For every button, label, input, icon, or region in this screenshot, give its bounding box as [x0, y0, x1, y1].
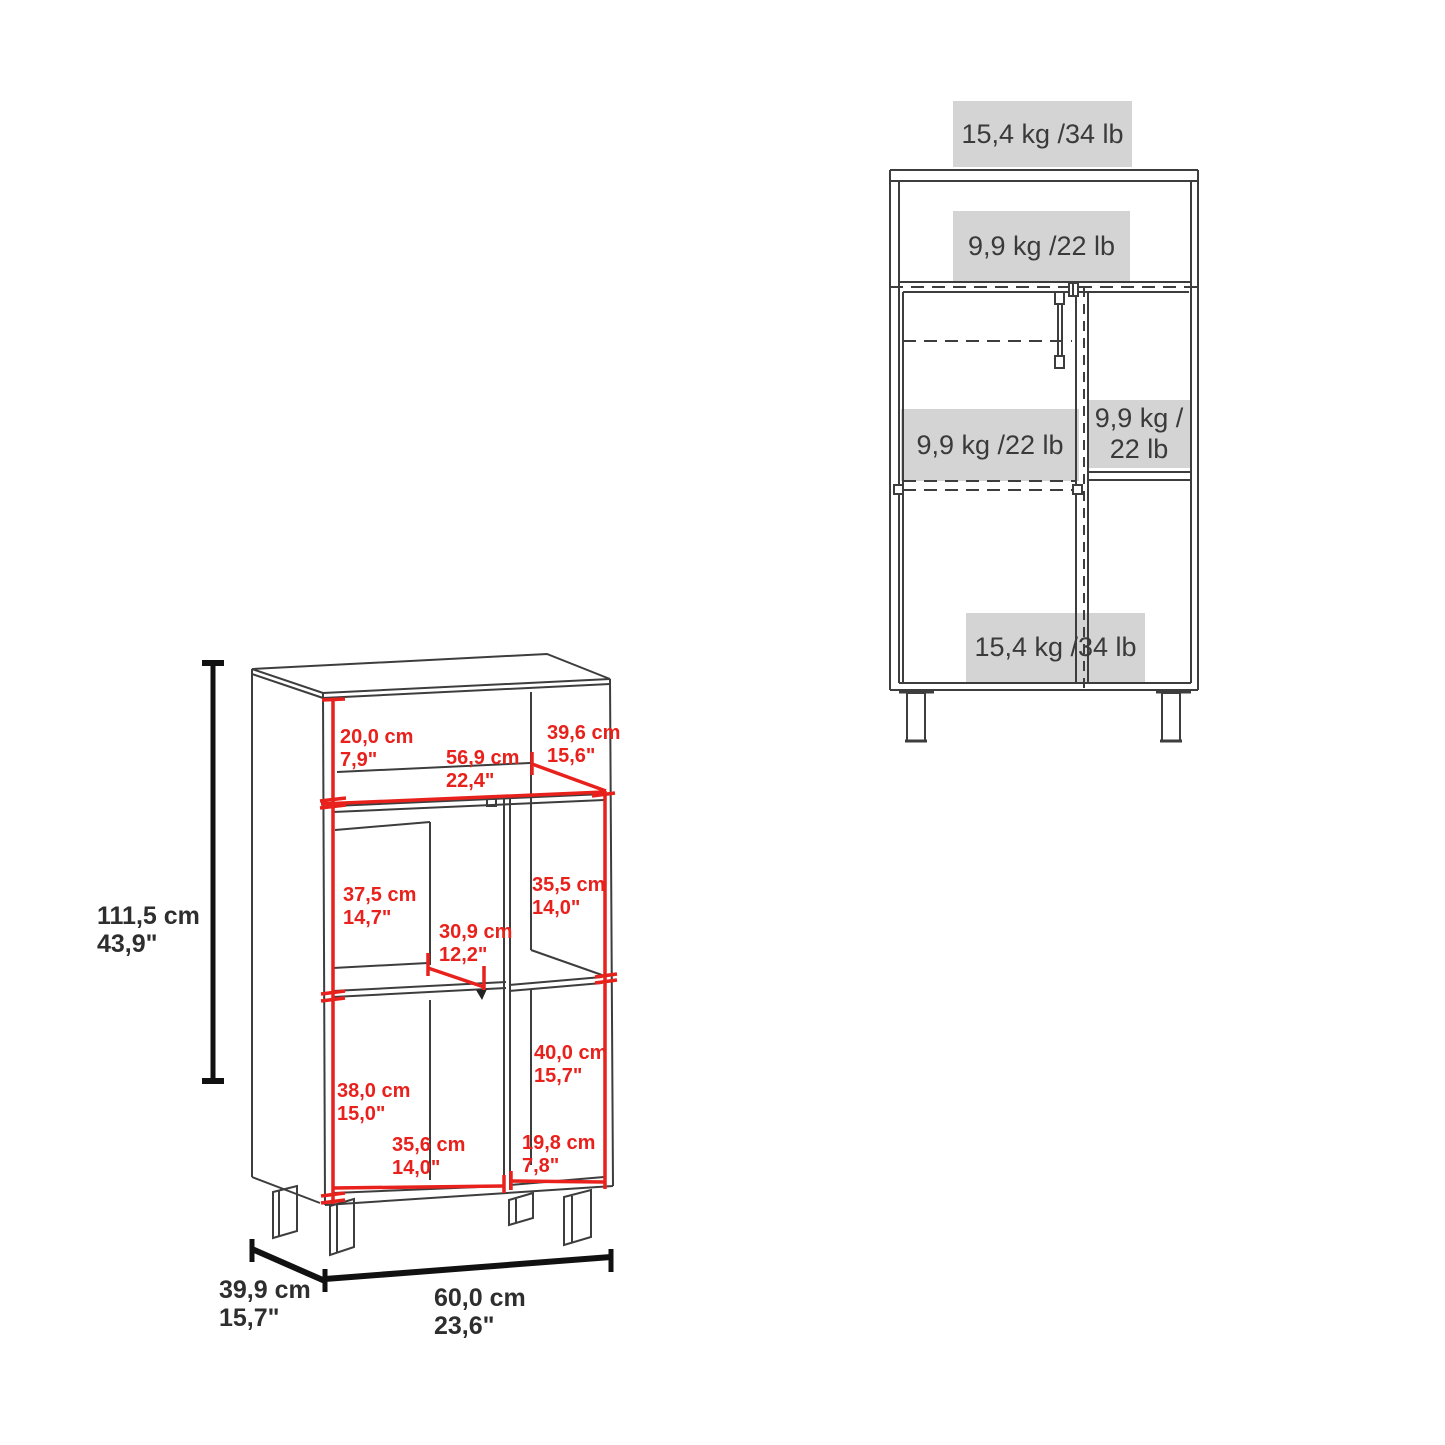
left-hinge-icon — [894, 485, 903, 494]
capacity-upper-shelf: 9,9 kg /22 lb — [953, 211, 1130, 281]
dim-upper-left-height: 37,5 cm 14,7" — [343, 884, 416, 930]
right-hinge-icon — [1073, 485, 1082, 494]
dim-top-shelf-depth: 39,6 cm 15,6" — [547, 722, 620, 768]
capacity-middle-left-shelf: 9,9 kg /22 lb — [901, 409, 1079, 481]
dim-overall-depth: 39,9 cm 15,7" — [219, 1276, 311, 1332]
dim-overall-width: 60,0 cm 23,6" — [434, 1284, 526, 1340]
dim-lower-right-height: 40,0 cm 15,7" — [534, 1042, 607, 1088]
dim-top-shelf-width: 56,9 cm 22,4" — [446, 747, 519, 793]
capacity-bottom-shelf: 15,4 kg /34 lb — [966, 613, 1145, 682]
dim-lower-left-height: 38,0 cm 15,0" — [337, 1080, 410, 1126]
dim-overall-height: 111,5 cm 43,9" — [97, 902, 200, 958]
dim-lower-right-width: 19,8 cm 7,8" — [522, 1132, 595, 1178]
capacity-boxes — [901, 101, 1190, 682]
dim-center-width: 30,9 cm 12,2" — [439, 921, 512, 967]
front-view-legs — [905, 693, 1182, 741]
dim-upper-right-height: 35,5 cm 14,0" — [532, 874, 605, 920]
capacity-middle-right-shelf: 9,9 kg / 22 lb — [1088, 400, 1190, 468]
diagram-linework — [0, 0, 1445, 1445]
dim-top-opening-height: 20,0 cm 7,9" — [340, 726, 413, 772]
capacity-top-surface: 15,4 kg /34 lb — [953, 101, 1132, 167]
shelf-pin-arrow-icon — [476, 989, 487, 1000]
dim-lower-left-width: 35,6 cm 14,0" — [392, 1134, 465, 1180]
door-piston-icon — [1055, 292, 1064, 368]
top-hinge-icon — [1069, 283, 1078, 296]
furniture-dimension-diagram: 111,5 cm 43,9" 20,0 cm 7,9" 56,9 cm 22,4… — [0, 0, 1445, 1445]
cabinet-3d-legs — [273, 1186, 591, 1255]
